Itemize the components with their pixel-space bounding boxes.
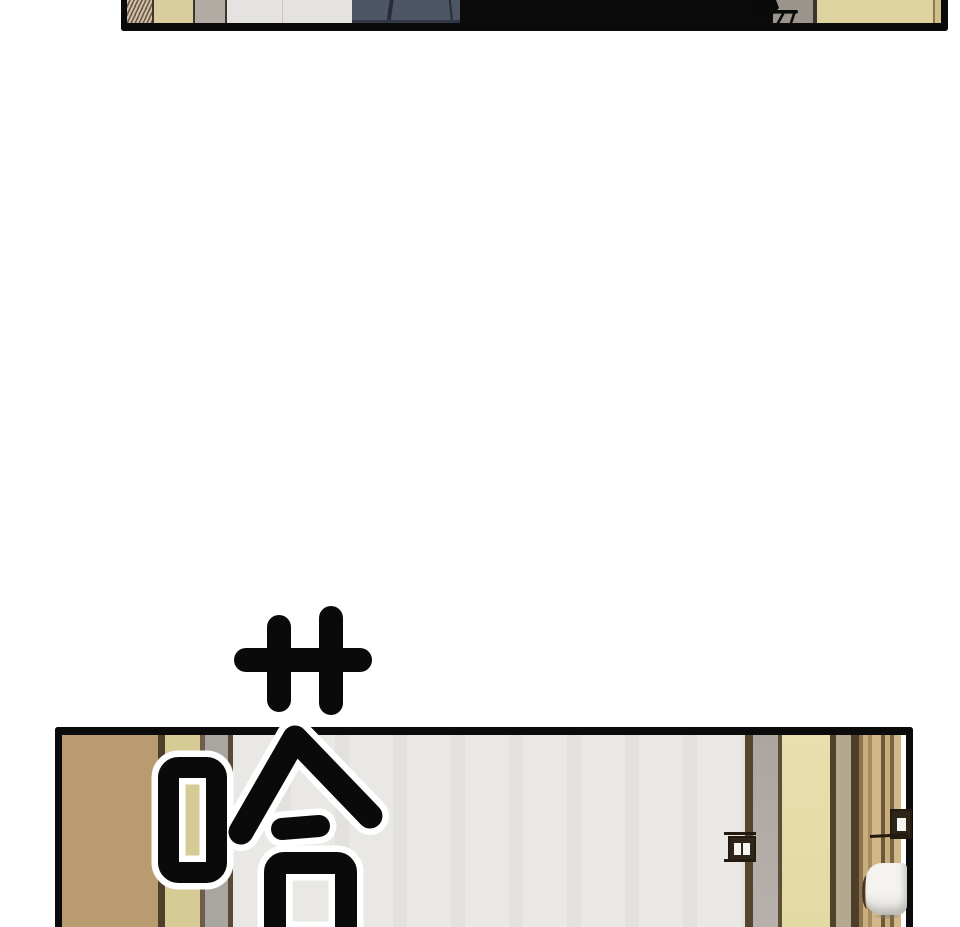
fabric-hem <box>352 20 460 23</box>
hatched-wood-strip <box>127 0 152 23</box>
khaki-wall-strip <box>154 0 193 23</box>
navy-clothing-shapes <box>352 0 460 23</box>
stool-silhouette-icon <box>750 0 802 23</box>
door-gray-edge <box>753 735 778 927</box>
light-wall-strip <box>227 0 352 23</box>
handle-shadow <box>872 914 902 919</box>
khaki-wall-right <box>817 0 933 23</box>
cream-door-edge <box>782 735 830 927</box>
wall-seam-line <box>282 0 283 23</box>
beige-jamb-strip <box>836 735 851 927</box>
top-panel <box>121 0 948 31</box>
tan-edge-strip <box>935 0 941 23</box>
sfx-ha-glyph <box>140 595 400 927</box>
hinge-plate-edge <box>724 859 756 862</box>
frame-line <box>851 735 859 927</box>
door-frame-line <box>745 735 753 927</box>
gray-pillar-strip <box>195 0 225 23</box>
top-panel-scene <box>127 0 941 23</box>
black-silhouette-mass <box>460 0 773 23</box>
hinge-plate-edge <box>724 832 756 835</box>
sfx-ha-drawing <box>140 595 400 927</box>
he-bottom-box <box>275 863 346 927</box>
he-middle-bar <box>282 826 319 829</box>
door-handle <box>866 863 907 915</box>
